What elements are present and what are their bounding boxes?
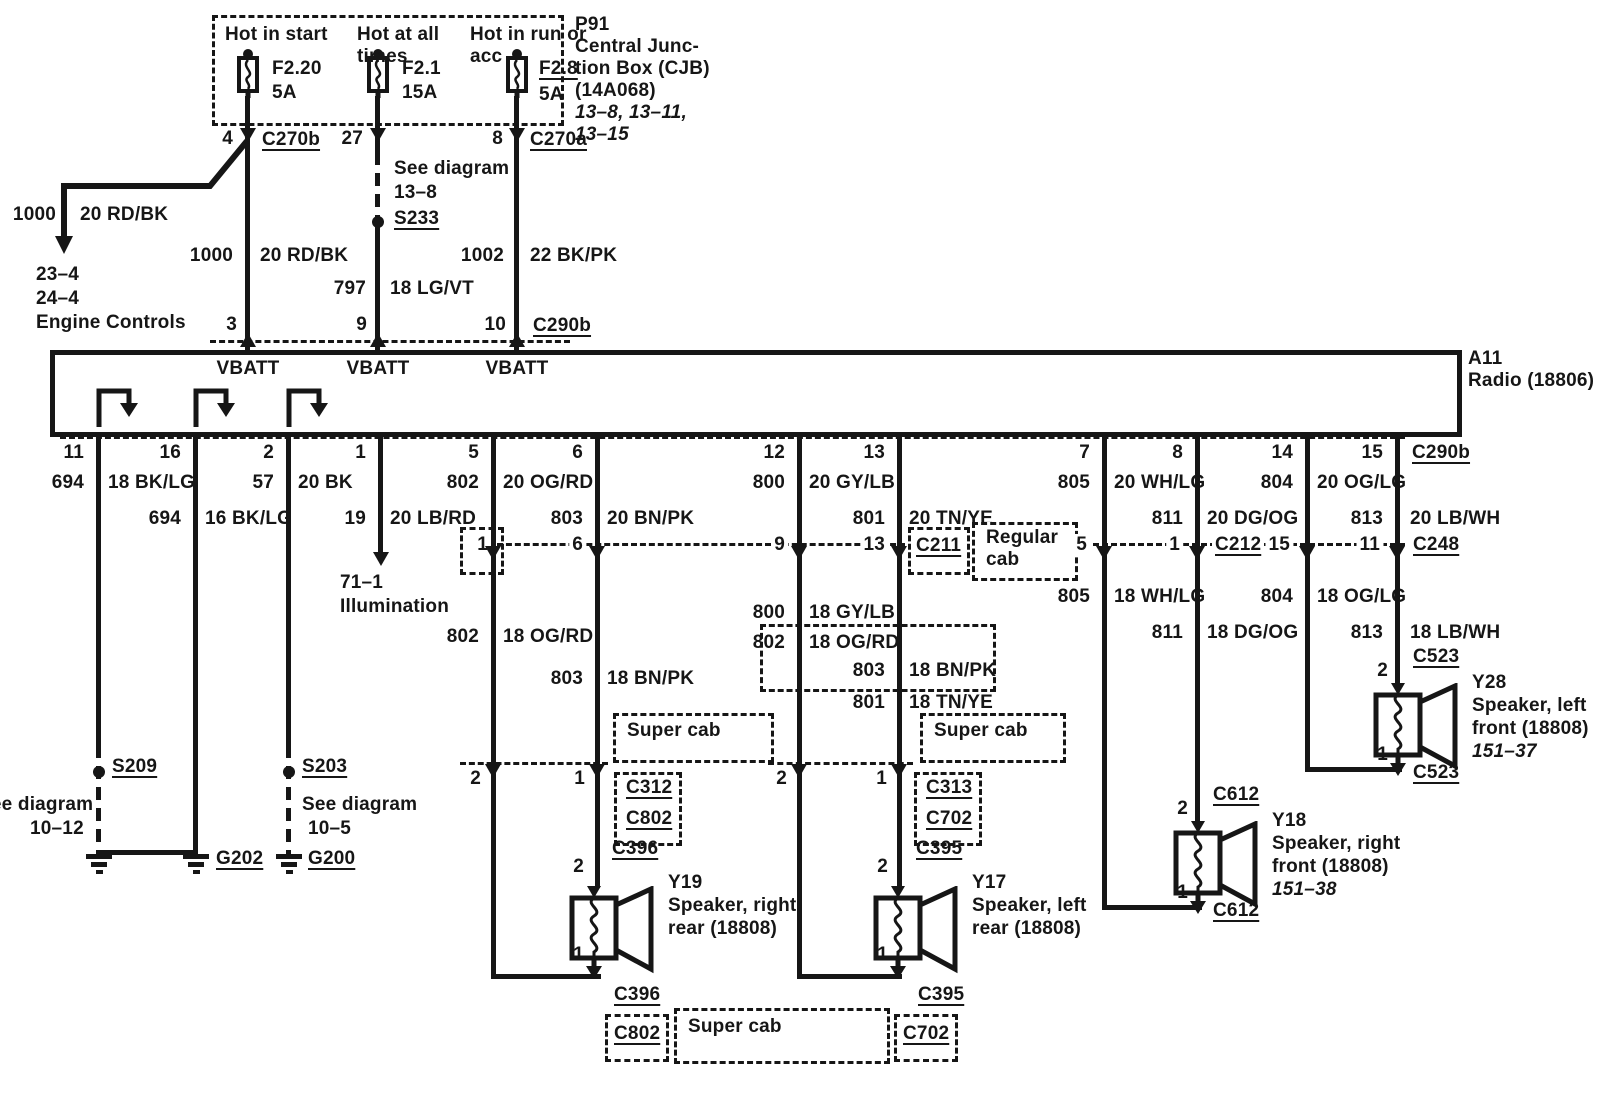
circuit-802: 802 <box>447 472 479 494</box>
vbatt-label: VBATT <box>347 358 410 380</box>
circuit-811b: 811 <box>1152 622 1183 644</box>
connector-c211: C211 <box>916 535 961 557</box>
speaker-y18-name-2: front (18808) <box>1272 856 1389 878</box>
color-20gylb: 20 GY/LB <box>809 472 895 494</box>
feed2-see-1: See diagram <box>394 158 509 180</box>
ground-icon <box>82 854 116 876</box>
arrow-icon <box>1389 546 1405 560</box>
feed1-circuit: 1000 <box>190 245 233 267</box>
speaker-pin-2: 2 <box>877 856 888 878</box>
splice-dot <box>93 766 105 778</box>
speaker-y18-id: Y18 <box>1272 810 1306 832</box>
xpin-15: 15 <box>1265 534 1293 556</box>
pin-6: 6 <box>572 442 583 464</box>
wire-694-b <box>193 432 198 856</box>
color-18ogrd-b: 18 OG/RD <box>809 632 899 654</box>
fuse3-header: Hot in run or <box>470 24 587 46</box>
ground-icon <box>272 854 306 876</box>
circuit-813: 813 <box>1351 508 1383 530</box>
speaker-y28-name-2: front (18808) <box>1472 718 1589 740</box>
ground-g202: G202 <box>216 848 263 870</box>
xpin-1: 1 <box>477 534 488 556</box>
pin-12: 12 <box>763 442 785 464</box>
connector-c523-bottom: C523 <box>1413 762 1459 784</box>
arrow-icon <box>589 764 605 778</box>
connector-line-a1 <box>497 543 905 546</box>
pin-9: 9 <box>356 314 367 336</box>
feed2-color: 18 LG/VT <box>390 278 474 300</box>
connector-c396-bottom: C396 <box>614 984 660 1006</box>
pin-8: 8 <box>492 128 503 150</box>
xpin-2: 2 <box>470 768 481 790</box>
xpin-9: 9 <box>771 534 788 556</box>
connector-c702-bottom: C702 <box>903 1023 949 1045</box>
splice-s203: S203 <box>302 756 347 778</box>
fuse3-header2: acc <box>470 46 502 68</box>
wiring-diagram: Hot in start Hot at all times Hot in run… <box>0 0 1600 1108</box>
circuit-803c: 803 <box>853 660 885 682</box>
wire-803 <box>595 432 600 888</box>
fuse2-amps: 15A <box>402 82 437 104</box>
radio-id: A11 <box>1468 348 1502 370</box>
wire-fuse2-dashed <box>375 152 380 224</box>
see-diagram-left-ref: 10–12 <box>30 818 84 840</box>
fuse2-header: Hot at all <box>357 24 439 46</box>
illumination-ref: 71–1 <box>340 572 383 594</box>
illumination-label: Illumination <box>340 596 449 618</box>
connector-c396-top: C396 <box>612 838 658 860</box>
feed1-color: 20 RD/BK <box>260 245 348 267</box>
pin-15: 15 <box>1361 442 1383 464</box>
wire-57-dashed <box>286 745 291 854</box>
xpin-1d: 1 <box>876 768 887 790</box>
arrow-icon <box>240 333 256 347</box>
ground-g200: G200 <box>308 848 355 870</box>
arrow-icon <box>891 764 907 778</box>
pin-10: 10 <box>484 314 506 336</box>
ground-icon <box>179 854 213 876</box>
speaker-y28-ref: 151–37 <box>1472 741 1537 763</box>
circuit-694: 694 <box>52 472 84 494</box>
arrow-icon <box>509 128 525 142</box>
color-20bk: 20 BK <box>298 472 353 494</box>
speaker-y19-name-2: rear (18808) <box>668 918 777 940</box>
color-16bklg: 16 BK/LG <box>205 508 292 530</box>
fuse3-name: F2.8 <box>539 58 578 80</box>
arrow-icon <box>370 128 386 142</box>
arrow-icon <box>589 546 605 560</box>
see-diagram-right-ref: 10–5 <box>308 818 351 840</box>
wire-694-a-dashed <box>96 745 101 854</box>
circuit-805: 805 <box>1058 472 1090 494</box>
circuit-802c: 802 <box>753 632 785 654</box>
connector-c802: C802 <box>626 808 672 830</box>
radio-internal-link-icon <box>286 388 330 428</box>
vbatt-label: VBATT <box>217 358 280 380</box>
radio-internal-link-icon <box>96 388 140 428</box>
connector-c270a: C270a <box>530 129 587 151</box>
color-18ogrd: 18 OG/RD <box>503 626 593 648</box>
connector-c313: C313 <box>926 777 972 799</box>
pin-11: 11 <box>64 442 85 464</box>
speaker-y17-id: Y17 <box>972 872 1006 894</box>
arrow-icon <box>791 764 807 778</box>
pin-27: 27 <box>341 128 363 150</box>
speaker-pin-1: 1 <box>1177 882 1188 904</box>
regular-cab-label-2: cab <box>986 549 1019 571</box>
connector-c212: C212 <box>1212 534 1264 556</box>
color-20ogrd: 20 OG/RD <box>503 472 593 494</box>
speaker-y19-id: Y19 <box>668 872 702 894</box>
pin-16: 16 <box>159 442 181 464</box>
color-20whlg: 20 WH/LG <box>1114 472 1205 494</box>
circuit-694b: 694 <box>149 508 181 530</box>
circuit-811: 811 <box>1152 508 1183 530</box>
wire-694-a <box>96 432 101 745</box>
connector-c395-bottom: C395 <box>918 984 964 1006</box>
circuit-800b: 800 <box>753 602 785 624</box>
wire-805 <box>1102 432 1107 910</box>
xpin-1b: 1 <box>1166 534 1183 556</box>
connector-c612-top: C612 <box>1213 784 1259 806</box>
color-18gylb: 18 GY/LB <box>809 602 895 624</box>
wire-802 <box>491 432 496 976</box>
wire-19 <box>378 432 383 554</box>
connector-c290b-top: C290b <box>533 315 591 337</box>
arrow-icon <box>373 552 389 566</box>
circuit-801: 801 <box>853 508 885 530</box>
pin-8: 8 <box>1172 442 1183 464</box>
color-18whlg: 18 WH/LG <box>1114 586 1205 608</box>
speaker-pin-1: 1 <box>877 944 888 966</box>
regular-cab-label-1: Regular <box>986 527 1058 549</box>
xpin-1c: 1 <box>574 768 585 790</box>
circuit-802b: 802 <box>447 626 479 648</box>
color-18tnye: 18 TN/YE <box>909 692 993 714</box>
speaker-pin-1: 1 <box>573 944 584 966</box>
color-20bnpk: 20 BN/PK <box>607 508 694 530</box>
circuit-803b: 803 <box>551 668 583 690</box>
xpin-13: 13 <box>860 534 888 556</box>
color-20lbwh: 20 LB/WH <box>1410 508 1500 530</box>
cjb-id: P91 <box>575 14 609 36</box>
fuse2-name: F2.1 <box>402 58 441 80</box>
arrow-icon <box>1299 546 1315 560</box>
pin-1: 1 <box>355 442 366 464</box>
super-cab-label: Super cab <box>934 720 1028 742</box>
feed3-color: 22 BK/PK <box>530 245 617 267</box>
cjb-part: (14A068) <box>575 80 656 102</box>
circuit-800: 800 <box>753 472 785 494</box>
fuse2-header2: times <box>357 46 408 68</box>
xpin-5: 5 <box>1073 534 1090 556</box>
pin-5: 5 <box>468 442 479 464</box>
arrow-icon <box>1096 546 1112 560</box>
feed3-circuit: 1002 <box>461 245 504 267</box>
branch-circuit: 1000 <box>13 204 56 226</box>
wire-57 <box>286 432 291 745</box>
speaker-y28-name-1: Speaker, left <box>1472 695 1587 717</box>
super-cab-label: Super cab <box>688 1016 782 1038</box>
wire-804 <box>1305 432 1310 772</box>
circuit-803: 803 <box>551 508 583 530</box>
speaker-y17-name-1: Speaker, left <box>972 895 1087 917</box>
connector-c395-top: C395 <box>916 838 962 860</box>
circuit-801b: 801 <box>853 692 885 714</box>
branch-ref-2: 24–4 <box>36 288 79 310</box>
arrow-icon <box>509 333 525 347</box>
splice-dot <box>372 216 384 228</box>
arrow-icon <box>791 546 807 560</box>
color-20dgog: 20 DG/OG <box>1207 508 1298 530</box>
speaker-y17-name-2: rear (18808) <box>972 918 1081 940</box>
pin-2: 2 <box>263 442 274 464</box>
feed2-see-2: 13–8 <box>394 182 437 204</box>
fuse3-amps: 5A <box>539 84 564 106</box>
xpin-11: 11 <box>1357 534 1384 556</box>
circuit-805b: 805 <box>1058 586 1090 608</box>
connector-c702: C702 <box>926 808 972 830</box>
branch-color: 20 RD/BK <box>80 204 168 226</box>
circuit-19: 19 <box>344 508 366 530</box>
xpin-2b: 2 <box>776 768 787 790</box>
pin-13: 13 <box>863 442 885 464</box>
color-18bklg: 18 BK/LG <box>108 472 195 494</box>
color-18dgog: 18 DG/OG <box>1207 622 1298 644</box>
speaker-y28-id: Y28 <box>1472 672 1506 694</box>
arrow-icon <box>370 333 386 347</box>
super-cab-label: Super cab <box>627 720 721 742</box>
speaker-pin-1: 1 <box>1377 744 1388 766</box>
fuse-icon <box>497 48 537 98</box>
circuit-804: 804 <box>1261 472 1293 494</box>
branch-dest: Engine Controls <box>36 312 186 334</box>
arrow-icon <box>891 546 907 560</box>
cjb-ref-1: 13–8, 13–11, <box>575 102 687 124</box>
connector-line-c290b-bottom <box>60 436 1405 439</box>
circuit-813b: 813 <box>1351 622 1383 644</box>
splice-s209: S209 <box>112 756 157 778</box>
color-20oglg: 20 OG/LG <box>1317 472 1406 494</box>
see-diagram-right: See diagram <box>302 794 417 816</box>
pin-7: 7 <box>1079 442 1090 464</box>
feed2-circuit: 797 <box>334 278 366 300</box>
color-18lbwh: 18 LB/WH <box>1410 622 1500 644</box>
connector-c248: C248 <box>1410 534 1462 556</box>
cjb-name-1: Central Junc- <box>575 36 699 58</box>
connector-line-c1 <box>460 762 608 765</box>
connector-c802-bottom: C802 <box>614 1023 660 1045</box>
speaker-pin-2: 2 <box>573 856 584 878</box>
connector-c612-bottom: C612 <box>1213 900 1259 922</box>
speaker-y19-name-1: Speaker, right <box>668 895 796 917</box>
speaker-pin-2: 2 <box>1177 798 1188 820</box>
speaker-y18-ref: 151–38 <box>1272 879 1337 901</box>
speaker-y18-name-1: Speaker, right <box>1272 833 1400 855</box>
see-diagram-left: See diagram <box>0 794 93 816</box>
circuit-57: 57 <box>252 472 274 494</box>
branch-ref-1: 23–4 <box>36 264 79 286</box>
splice-dot <box>283 766 295 778</box>
connector-c312: C312 <box>626 777 672 799</box>
pin-3: 3 <box>226 314 237 336</box>
circuit-804b: 804 <box>1261 586 1293 608</box>
cjb-name-2: tion Box (CJB) <box>575 58 710 80</box>
radio-internal-link-icon <box>193 388 237 428</box>
speaker-pin-2: 2 <box>1377 660 1388 682</box>
xpin-6: 6 <box>569 534 586 556</box>
splice-s233: S233 <box>394 208 439 230</box>
connector-c523-top: C523 <box>1413 646 1459 668</box>
color-18bnpk: 18 BN/PK <box>607 668 694 690</box>
color-18oglg: 18 OG/LG <box>1317 586 1406 608</box>
vbatt-label: VBATT <box>486 358 549 380</box>
radio-name: Radio (18806) <box>1468 370 1594 392</box>
arrow-icon <box>485 764 501 778</box>
color-18bnpk-b: 18 BN/PK <box>909 660 996 682</box>
wire-800 <box>797 432 802 976</box>
branch-wire <box>0 0 300 270</box>
arrow-icon <box>1189 546 1205 560</box>
connector-c290b-bottom: C290b <box>1412 442 1470 464</box>
pin-14: 14 <box>1271 442 1293 464</box>
